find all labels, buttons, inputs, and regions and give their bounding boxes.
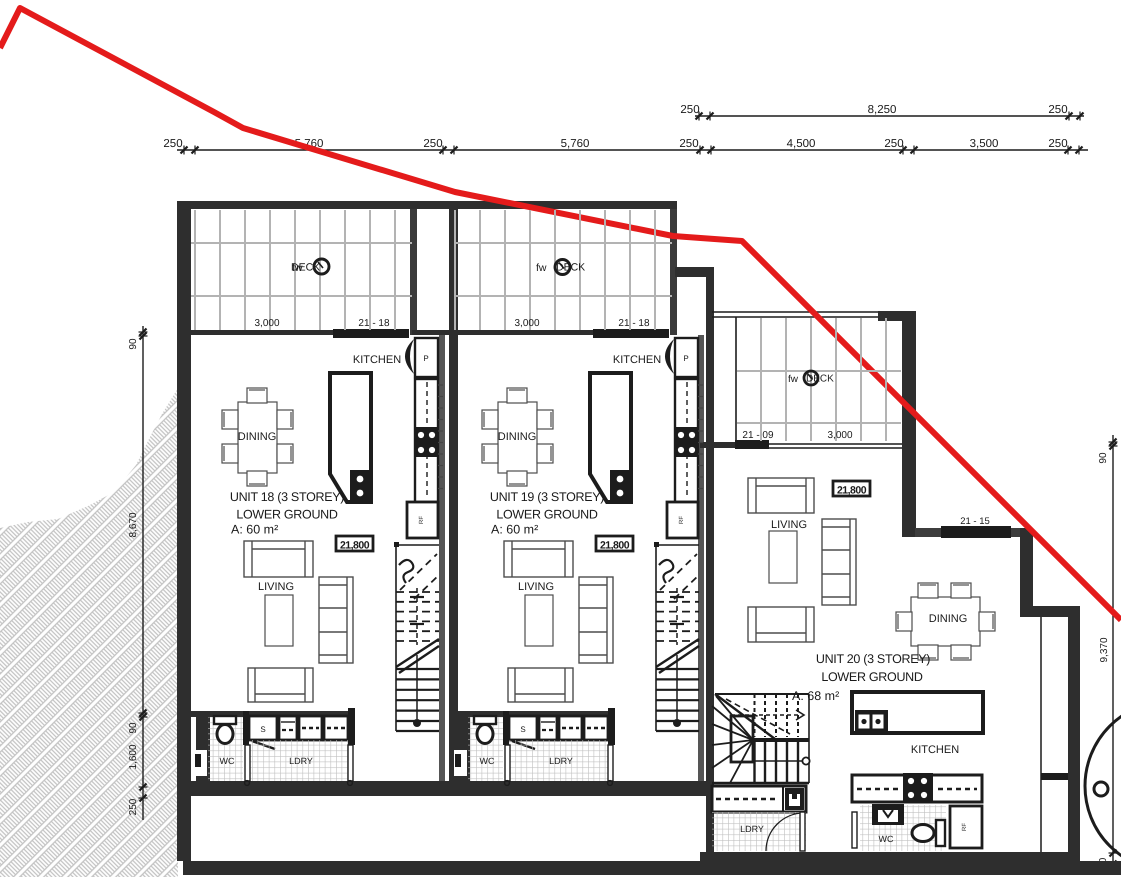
svg-text:DINING: DINING [929, 613, 968, 625]
svg-text:1,600: 1,600 [128, 744, 139, 769]
svg-text:250: 250 [423, 138, 442, 150]
svg-text:WC: WC [879, 834, 894, 844]
svg-text:UNIT 19 (3 STOREY): UNIT 19 (3 STOREY) [490, 490, 604, 504]
svg-text:WC: WC [220, 756, 235, 766]
svg-text:LDRY: LDRY [289, 756, 313, 766]
svg-text:3,000: 3,000 [254, 318, 279, 329]
svg-text:DINING: DINING [498, 431, 537, 443]
svg-text:KITCHEN: KITCHEN [911, 744, 959, 756]
svg-text:RF: RF [961, 823, 968, 831]
svg-text:fw: fw [788, 374, 799, 385]
svg-text:A: 60 m²: A: 60 m² [491, 523, 538, 537]
svg-text:UNIT 18 (3 STOREY): UNIT 18 (3 STOREY) [230, 490, 344, 504]
svg-text:21 - 09: 21 - 09 [742, 430, 774, 441]
svg-text:5,760: 5,760 [561, 138, 590, 150]
svg-text:90: 90 [128, 338, 139, 350]
svg-text:DECK: DECK [806, 374, 834, 385]
svg-text:LDRY: LDRY [549, 756, 573, 766]
svg-text:RF: RF [678, 516, 685, 524]
svg-text:90: 90 [1098, 452, 1109, 464]
svg-text:A: 68 m²: A: 68 m² [792, 689, 839, 703]
svg-text:3,000: 3,000 [514, 318, 539, 329]
svg-text:21 - 18: 21 - 18 [358, 318, 390, 329]
svg-text:21,800: 21,800 [340, 540, 370, 552]
svg-text:9,370: 9,370 [1099, 637, 1110, 662]
svg-text:4,500: 4,500 [787, 138, 816, 150]
svg-text:250: 250 [679, 138, 698, 150]
svg-text:WC: WC [480, 756, 495, 766]
svg-text:KITCHEN: KITCHEN [353, 354, 401, 366]
svg-text:S: S [520, 725, 525, 734]
svg-text:3,000: 3,000 [827, 430, 852, 441]
svg-text:250: 250 [128, 798, 139, 815]
svg-text:LOWER GROUND: LOWER GROUND [821, 670, 923, 684]
svg-text:A: 60 m²: A: 60 m² [231, 523, 278, 537]
svg-text:21,800: 21,800 [837, 485, 867, 497]
svg-text:UNIT 20 (3 STOREY): UNIT 20 (3 STOREY) [816, 652, 930, 666]
svg-text:250: 250 [1048, 104, 1067, 116]
svg-text:250: 250 [1048, 138, 1067, 150]
svg-text:21 - 18: 21 - 18 [618, 318, 650, 329]
svg-text:fw: fw [292, 262, 303, 274]
svg-text:LOWER GROUND: LOWER GROUND [236, 508, 338, 522]
svg-text:250: 250 [680, 104, 699, 116]
svg-text:LIVING: LIVING [518, 581, 554, 593]
svg-text:8,250: 8,250 [868, 104, 897, 116]
svg-text:LDRY: LDRY [740, 824, 764, 834]
svg-text:DINING: DINING [238, 431, 277, 443]
svg-text:P: P [683, 354, 688, 363]
svg-text:90: 90 [128, 722, 139, 734]
svg-text:250: 250 [163, 138, 182, 150]
svg-text:P: P [423, 354, 428, 363]
svg-text:8,670: 8,670 [128, 512, 139, 537]
svg-text:3,500: 3,500 [970, 138, 999, 150]
svg-text:21 - 15: 21 - 15 [960, 516, 990, 527]
svg-text:KITCHEN: KITCHEN [613, 354, 661, 366]
svg-text:LIVING: LIVING [258, 581, 294, 593]
svg-text:LIVING: LIVING [771, 519, 807, 531]
svg-text:fw: fw [536, 262, 547, 274]
svg-text:21,800: 21,800 [600, 540, 630, 552]
svg-text:RF: RF [418, 516, 425, 524]
svg-text:250: 250 [884, 138, 903, 150]
svg-text:S: S [260, 725, 265, 734]
svg-text:LOWER GROUND: LOWER GROUND [496, 508, 598, 522]
